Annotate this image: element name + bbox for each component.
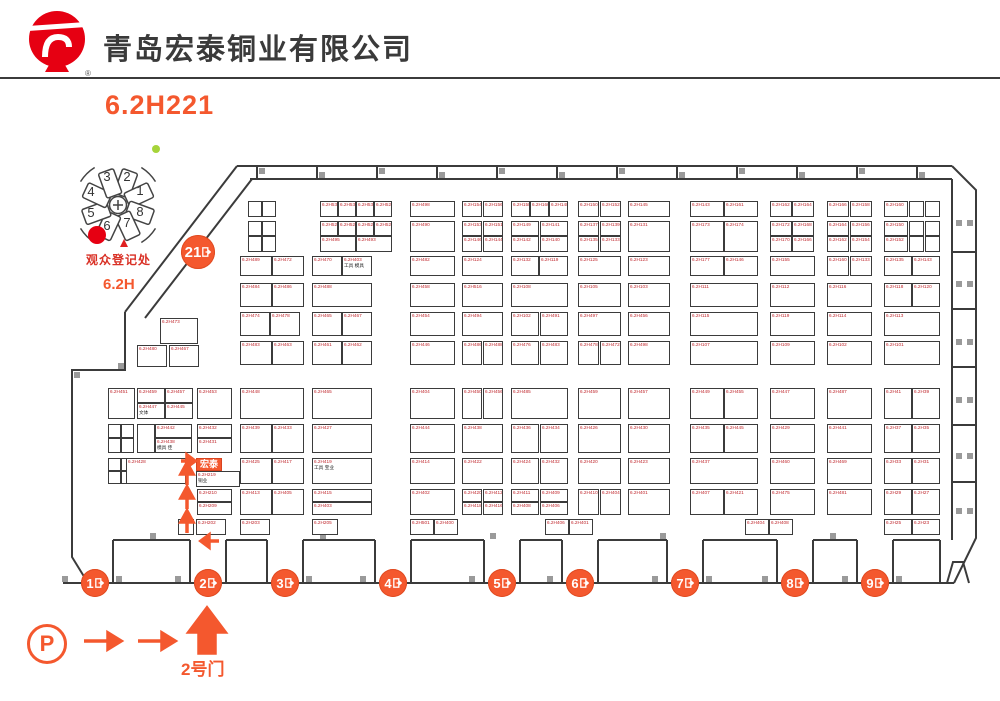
- booth: 6.2H39: [912, 388, 940, 419]
- booth: 6.2H408: [511, 502, 539, 515]
- booth: 6.2H483: [540, 341, 568, 365]
- booth-label: 6.2H166: [794, 238, 809, 243]
- booth: 6.2H462: [342, 341, 372, 365]
- booth: 6.2H480: [137, 345, 167, 367]
- booth: 6.2H430: [628, 424, 670, 453]
- booth: 6.2H160: [827, 256, 849, 276]
- booth-label: 6.2H160: [886, 203, 902, 208]
- gate-7: 7: [671, 569, 699, 597]
- booth: 6.2H438: [462, 424, 503, 453]
- booth-label: 6.2H488: [485, 343, 498, 348]
- booth-label: 6.2H160: [532, 203, 544, 208]
- booth-label: 6.2H516: [464, 285, 494, 290]
- booth: 6.2H143: [912, 256, 940, 276]
- booth-label: 6.2H162: [829, 238, 844, 243]
- booth-label: 6.2H202: [198, 521, 219, 526]
- booth-label: 6.2H457: [630, 390, 660, 395]
- booth: 6.2H455: [724, 388, 758, 419]
- booth: 6.2H498: [410, 201, 455, 217]
- booth-label: 6.2H467: [344, 314, 365, 319]
- booth: 6.2H456: [628, 312, 670, 336]
- booth-label: 6.2H491: [542, 314, 562, 319]
- booth-label: 6.2H25: [886, 521, 906, 526]
- booth-sublabel: 铜业: [198, 479, 230, 484]
- booth-label: 6.2H448: [242, 390, 290, 395]
- booth-sublabel: 模具 佳: [157, 446, 184, 451]
- booth-label: 6.2H403: [344, 258, 365, 263]
- booth: 6.2H414: [410, 458, 455, 484]
- booth: 6.2H119: [539, 256, 568, 276]
- booth: [248, 221, 262, 236]
- booth-label: 6.2H438: [464, 426, 494, 431]
- booth: 6.2H160: [530, 201, 549, 217]
- booth-label: 6.2H41: [886, 390, 906, 395]
- booth-label: 6.2H140: [542, 238, 562, 243]
- booth: 6.2H531: [356, 201, 374, 217]
- booth: 6.2H139: [600, 221, 621, 236]
- booth-label: 6.2H114: [829, 314, 862, 319]
- booth-sublabel: 文体: [139, 411, 159, 416]
- booth-label: 6.2H458: [412, 285, 445, 290]
- booth: 6.2H135: [884, 256, 912, 276]
- booth-label: 6.2H404: [747, 521, 763, 526]
- booth-label: 6.2H421: [726, 491, 750, 496]
- booth: 6.2H454: [410, 312, 455, 336]
- booth-label: 6.2H203: [242, 521, 263, 526]
- booth: 6.2H420: [578, 458, 621, 484]
- booth: [108, 424, 121, 438]
- booth-label: 6.2H490: [412, 223, 445, 228]
- booth: 6.2H407: [690, 489, 724, 515]
- booth: 6.2H168: [792, 221, 814, 236]
- booth-label: 6.2H501: [412, 521, 428, 526]
- booth-label: 6.2H153: [464, 223, 477, 228]
- booth: [108, 471, 121, 484]
- booth: 6.2H156: [850, 221, 872, 236]
- booth-label: 6.2H35: [914, 426, 934, 431]
- booth: 6.2H102: [827, 341, 872, 365]
- booth: 6.2H472: [272, 256, 304, 276]
- booth-label: 6.2H402: [412, 491, 445, 496]
- booth-label: 6.2H410: [580, 491, 594, 496]
- door-exit-icon: [202, 247, 211, 257]
- booth: 6.2H103: [628, 283, 670, 307]
- booth-label: 6.2H408: [771, 521, 787, 526]
- booth-label: 6.2H533: [340, 203, 352, 208]
- booth: 6.2H404: [600, 489, 621, 515]
- parking-symbol: P: [27, 624, 67, 664]
- booth-label: 6.2H498: [412, 203, 445, 208]
- booth-label: 6.2H486: [464, 343, 477, 348]
- booth: 6.2H219铜业: [196, 471, 240, 487]
- booth: 6.2H405: [272, 489, 304, 515]
- booth-label: 6.2H480: [139, 347, 160, 352]
- door-exit-icon: [393, 578, 402, 588]
- door-exit-icon: [502, 578, 511, 588]
- booth: 6.2H436: [511, 424, 539, 453]
- booth: 6.2H123: [628, 256, 670, 276]
- booth: 6.2H404: [410, 388, 455, 419]
- booth-label: 6.2H424: [513, 460, 533, 465]
- booth-label: 6.2H135: [886, 258, 906, 263]
- gate-number: 9: [866, 576, 873, 591]
- booth: 6.2H156: [483, 201, 503, 217]
- booth: [262, 236, 276, 252]
- booth: 6.2H425: [240, 458, 272, 484]
- booth: 6.2H478: [270, 312, 300, 336]
- booth-label: 6.2H414: [412, 460, 445, 465]
- booth: 6.2H435: [690, 424, 724, 453]
- booth: 6.2H535: [320, 201, 338, 217]
- booth: 6.2H209: [197, 502, 232, 515]
- booth-label: 6.2H156: [852, 223, 867, 228]
- booth-label: 6.2H459: [580, 390, 611, 395]
- door-exit-icon: [285, 578, 294, 588]
- booth: 6.2H150: [884, 221, 908, 236]
- booth: 6.2H463: [272, 341, 304, 365]
- booth: 6.2H135: [578, 236, 599, 252]
- booth-label: 6.2H401: [630, 491, 660, 496]
- booth-label: 6.2H498: [630, 343, 660, 348]
- booth-label: 6.2H156: [485, 203, 498, 208]
- booth-label: 6.2H107: [692, 343, 743, 348]
- booth: 6.2H31: [912, 458, 940, 484]
- booth: [262, 221, 276, 236]
- booth: 6.2H202: [196, 519, 226, 535]
- booth: 6.2H119: [770, 312, 815, 336]
- booth-label: 6.2H462: [344, 343, 365, 348]
- booth: 6.2H406: [540, 502, 568, 515]
- booth-label: 6.2H413: [242, 491, 265, 496]
- booth-label: 6.2H405: [274, 491, 297, 496]
- booth-label: 6.2H483: [542, 343, 562, 348]
- booth-label: 6.2H456: [485, 390, 498, 395]
- booth: 6.2H434: [540, 424, 568, 453]
- booth-label: 6.2H423: [630, 460, 660, 465]
- booth-label: 6.2H485: [513, 390, 555, 395]
- booth: 6.2H114: [827, 312, 872, 336]
- booth-label: 6.2H133: [602, 238, 616, 243]
- booth-label: 6.2H455: [726, 390, 750, 395]
- booth-label: 6.2H139: [602, 223, 616, 228]
- booth-label: 6.2H116: [829, 285, 862, 290]
- booth: 6.2H102: [511, 312, 539, 336]
- booth: 6.2H132: [511, 256, 539, 276]
- booth-label: 6.2H419: [314, 460, 358, 465]
- booth: 6.2H445: [724, 424, 758, 453]
- booth: 6.2H426: [578, 424, 621, 453]
- gate-number: 4: [384, 576, 391, 591]
- booth-label: 6.2H445: [167, 405, 187, 410]
- booth-label: 6.2H170: [772, 238, 787, 243]
- booth-label: 6.2H406: [547, 521, 563, 526]
- booth-label: 6.2H164: [794, 203, 809, 208]
- booth-label: 6.2H112: [772, 285, 805, 290]
- gate-4: 4: [379, 569, 407, 597]
- booth: 6.2H442: [155, 424, 192, 438]
- booth-label: 6.2H472: [274, 258, 297, 263]
- booth-sublabel: 工具 模具: [344, 264, 365, 269]
- booth-label: 6.2H155: [772, 258, 805, 263]
- booth-label: 6.2H469: [829, 460, 862, 465]
- booth: 6.2H140: [540, 236, 568, 252]
- booth: 6.2H491: [540, 312, 568, 336]
- booth: 6.2H27: [912, 489, 940, 515]
- booth: 6.2H444: [410, 424, 455, 453]
- booth-label: 6.2H445: [726, 426, 750, 431]
- booth-label: 6.2H177: [692, 258, 716, 263]
- booth: 6.2H447文体: [137, 403, 165, 419]
- booth: 6.2H133: [850, 256, 872, 276]
- booth: 6.2H478: [578, 341, 599, 365]
- booth: 6.2H527: [320, 221, 338, 236]
- entrance-gate-label: 2号门: [181, 655, 224, 680]
- gate-3: 3: [271, 569, 299, 597]
- booth-label: 6.2H158: [852, 203, 867, 208]
- booth: 6.2H458: [410, 283, 455, 307]
- booth-label: 6.2H408: [513, 504, 533, 509]
- booth: 6.2H473: [160, 318, 198, 344]
- booth-label: 6.2H31: [914, 460, 934, 465]
- booth-label: 6.2H476: [513, 343, 533, 348]
- booth: 6.2H533: [338, 201, 356, 217]
- booth: 6.2H447: [770, 388, 815, 419]
- booth: 6.2H160: [884, 201, 908, 217]
- booth-label: 6.2H109: [772, 343, 805, 348]
- booth-sublabel: 工具 宝业: [314, 466, 358, 471]
- booth-label: 6.2H132: [513, 258, 533, 263]
- gate-5: 5: [488, 569, 516, 597]
- booth: 6.2H474: [240, 312, 270, 336]
- booth: 6.2H489: [240, 256, 272, 276]
- booth: 6.2H153: [462, 221, 482, 236]
- booth: 6.2H419工具 宝业: [312, 458, 372, 484]
- booth: 6.2H403: [312, 502, 372, 515]
- booth: 6.2H451: [108, 388, 135, 419]
- booth-label: 6.2H164: [829, 223, 844, 228]
- booth: 6.2H460: [770, 458, 815, 484]
- booth: 6.2H493: [356, 236, 392, 252]
- booth-label: 6.2H154: [464, 203, 477, 208]
- door-exit-icon: [580, 578, 589, 588]
- booth-label: 6.2H143: [692, 203, 716, 208]
- booth-label: 6.2H444: [412, 426, 445, 431]
- booth-label: 6.2H404: [412, 390, 445, 395]
- booth-label: 6.2H400: [436, 521, 452, 526]
- booth-label: 6.2H439: [242, 426, 265, 431]
- booth-label: 6.2H415: [314, 491, 358, 496]
- booth-label: 6.2H438: [157, 440, 184, 445]
- booth-label: 6.2H429: [772, 426, 805, 431]
- booth-label: 6.2H219: [198, 473, 230, 478]
- booth-label: 6.2H525: [340, 223, 352, 228]
- booth: 6.2H172: [770, 221, 792, 236]
- booth: 6.2H404: [745, 519, 769, 535]
- gate-number: 21: [185, 244, 202, 261]
- booth-label: 6.2H148: [551, 203, 563, 208]
- booth-label: 6.2H23: [914, 521, 934, 526]
- booth-label: 6.2H161: [726, 203, 750, 208]
- booth-label: 6.2H119: [772, 314, 805, 319]
- booth: 6.2H415: [312, 489, 372, 502]
- booth: 6.2H446: [410, 341, 455, 365]
- booth: 6.2H109: [770, 341, 815, 365]
- booth: 6.2H118: [884, 283, 912, 307]
- booth-label: 6.2H162: [772, 203, 787, 208]
- gate-2: 2: [194, 569, 222, 597]
- booth: 6.2H146: [462, 236, 482, 252]
- booth: [248, 201, 262, 217]
- booth: 6.2H459: [137, 388, 165, 403]
- booth: 6.2H495: [320, 236, 356, 252]
- booth: 6.2H472: [600, 341, 621, 365]
- booth: 6.2H205: [312, 519, 338, 535]
- booth: 6.2H115: [690, 312, 758, 336]
- booth-label: 6.2H449: [692, 390, 716, 395]
- booth: 6.2H483: [240, 341, 272, 365]
- booth-label: 6.2H450: [464, 390, 477, 395]
- booth: 6.2H418: [462, 502, 482, 515]
- booth-label: 6.2H131: [630, 223, 660, 228]
- booth: [108, 438, 121, 453]
- booth: 6.2H124: [462, 256, 503, 276]
- booth: 6.2H484: [240, 283, 272, 307]
- booth: [909, 221, 924, 236]
- booth-label: 6.2H420: [580, 460, 611, 465]
- gate-number: 6: [571, 576, 578, 591]
- booth: 6.2H497: [578, 312, 621, 336]
- booth-label: 6.2H431: [199, 440, 224, 445]
- booth: 6.2H449: [690, 388, 724, 419]
- booth-label: 6.2H406: [542, 504, 562, 509]
- booth-label: 6.2H483: [242, 343, 265, 348]
- booth: 6.2H152: [884, 236, 908, 252]
- booth-label: 6.2H521: [376, 223, 388, 228]
- booth: 6.2H131: [628, 221, 670, 252]
- booth: 6.2H402: [410, 489, 455, 515]
- booth-label: 6.2H437: [692, 460, 743, 465]
- gate-number: 5: [493, 576, 500, 591]
- gate-1: 1: [81, 569, 109, 597]
- booth: 6.2H141: [540, 221, 568, 236]
- booth-label: 6.2H463: [274, 343, 297, 348]
- booth: 6.2H170: [770, 236, 792, 252]
- booth: 6.2H403工具 模具: [342, 256, 372, 276]
- booth-label: 6.2H152: [602, 203, 616, 208]
- booth-label: 6.2H481: [829, 491, 862, 496]
- gate-number: 7: [676, 576, 683, 591]
- booth-label: 6.2H149: [513, 223, 533, 228]
- booth-label: 6.2H102: [513, 314, 533, 319]
- booth: 6.2H158: [511, 201, 530, 217]
- booth: 6.2H465: [312, 388, 372, 419]
- booth-label: 6.2H119: [541, 258, 561, 263]
- booth-label: 6.2H460: [772, 460, 805, 465]
- booth: 6.2H41: [884, 388, 912, 419]
- booth: 6.2H125: [578, 256, 621, 276]
- door-exit-icon: [795, 578, 804, 588]
- booth: 6.2H35: [912, 424, 940, 453]
- booth: 6.2H166: [827, 201, 849, 217]
- booth: 6.2H417: [272, 458, 304, 484]
- booth-label: 6.2H473: [162, 320, 189, 325]
- booth: 6.2H143: [690, 201, 724, 217]
- booth-label: 6.2H487: [829, 390, 862, 395]
- booth-label: 6.2H141: [542, 223, 562, 228]
- booth-label: 6.2H150: [886, 223, 902, 228]
- booth: [925, 201, 940, 217]
- booth: 6.2H108: [511, 283, 568, 307]
- booth: 6.2H486: [272, 283, 304, 307]
- booth: 6.2H421: [724, 489, 758, 515]
- booth: 6.2H429: [770, 424, 815, 453]
- booth-label: 6.2H432: [199, 426, 224, 431]
- booth: 6.2H501: [410, 519, 434, 535]
- booth: 6.2H498: [628, 341, 670, 365]
- booth: 6.2H144: [483, 236, 503, 252]
- booth-label: 6.2H442: [157, 426, 184, 431]
- booth: 6.2H410: [578, 489, 599, 515]
- booth-label: 6.2H39: [914, 390, 934, 395]
- booth-label: 6.2H108: [513, 285, 555, 290]
- booth: 6.2H162: [770, 201, 792, 217]
- booth: 6.2H490: [410, 221, 455, 252]
- booth-label: 6.2H124: [464, 258, 494, 263]
- booth-label: 6.2H154: [852, 238, 867, 243]
- booth-label: 6.2H205: [314, 521, 332, 526]
- booth: [108, 458, 121, 471]
- booth-highlight: 宏泰: [196, 458, 222, 471]
- booth: [925, 236, 940, 252]
- booth: 6.2H433: [272, 424, 304, 453]
- booth: 6.2H166: [792, 236, 814, 252]
- booth-label: 6.2H425: [242, 460, 265, 465]
- booth-label: 6.2H472: [602, 343, 616, 348]
- booth-label: 6.2H422: [464, 460, 494, 465]
- booth-label: 6.2H535: [322, 203, 334, 208]
- booth: 6.2H145: [628, 201, 670, 217]
- booth: 6.2H101: [884, 341, 940, 365]
- booth-label: 6.2H427: [314, 426, 358, 431]
- booth-label: 6.2H407: [692, 491, 716, 496]
- booth: 6.2H203: [240, 519, 270, 535]
- booth-label: 6.2H475: [772, 491, 805, 496]
- booth: 6.2H111: [690, 283, 758, 307]
- booth: 6.2H133: [600, 236, 621, 252]
- booth: 6.2H467: [342, 312, 372, 336]
- booth-label: 6.2H118: [886, 285, 906, 290]
- booth: 6.2H482: [410, 256, 455, 276]
- booth: 6.2H146: [724, 256, 758, 276]
- booth-label: 6.2H401: [571, 521, 587, 526]
- booth: [248, 236, 262, 252]
- booth-label: 6.2H160: [829, 258, 844, 263]
- booth-label: 6.2H527: [322, 223, 334, 228]
- booth: 6.2H408: [769, 519, 793, 535]
- booth-label: 6.2H133: [852, 258, 867, 263]
- booth: 6.2H148: [549, 201, 568, 217]
- booth-label: 6.2H489: [242, 258, 265, 263]
- booth: 6.2H486: [462, 341, 482, 365]
- booth: 6.2H428: [126, 458, 186, 484]
- booth: 6.2H457: [165, 388, 193, 403]
- booth-label: 6.2H151: [485, 223, 498, 228]
- booth-label: 6.2H403: [314, 504, 358, 509]
- booth: 6.2H450: [462, 388, 482, 419]
- booth-label: 6.2H120: [914, 285, 934, 290]
- booth-label: 6.2H459: [139, 390, 159, 395]
- booth: [121, 424, 134, 438]
